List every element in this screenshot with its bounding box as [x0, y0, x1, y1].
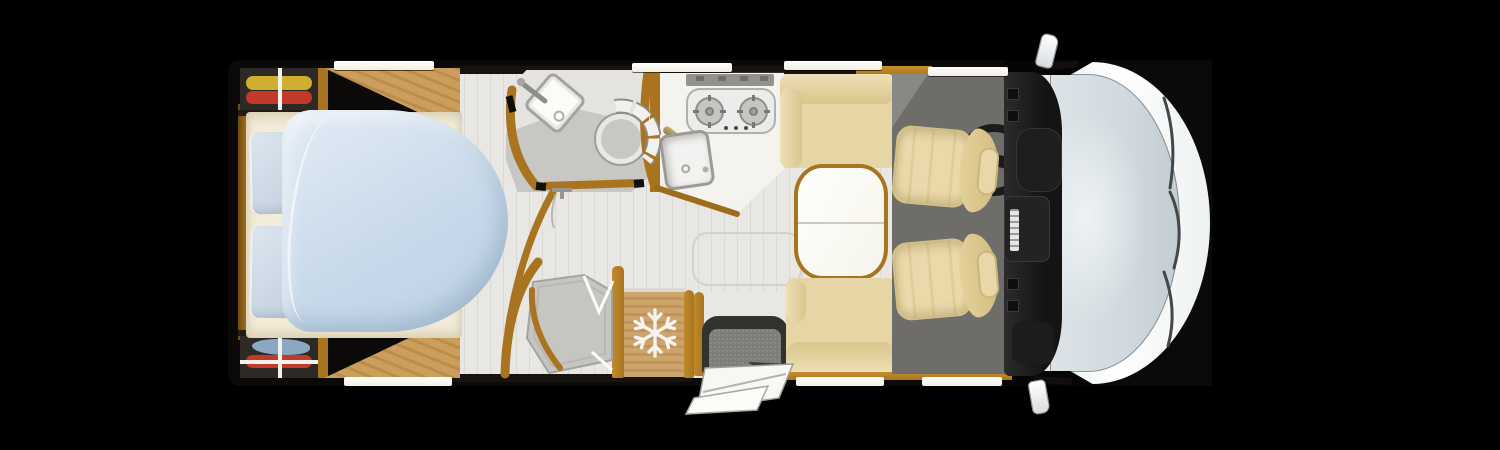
wall-shadow	[634, 183, 644, 184]
toilet-lid	[615, 106, 654, 160]
washroom-faucet	[523, 84, 545, 101]
counter-edge	[657, 188, 737, 214]
window-strip-bottom-bedroom	[344, 377, 452, 386]
wall-shadow	[509, 96, 513, 112]
window-strip-top-dinette	[784, 61, 882, 70]
wiper-blades	[1164, 98, 1179, 346]
window-strip-top-cab	[928, 67, 1008, 76]
faucet-knob	[517, 78, 525, 86]
wall-shadow	[536, 186, 546, 187]
snowflake-icon	[632, 310, 678, 356]
window-strip-top-bedroom	[334, 61, 434, 70]
washroom-wall-bottom	[544, 183, 642, 186]
detail-overlay	[0, 0, 1500, 450]
floorplan-canvas	[0, 0, 1500, 450]
window-strip-bottom-cab	[922, 377, 1002, 386]
window-strip-top-kitchen	[632, 63, 732, 72]
window-strip-bottom-dinette	[796, 377, 884, 386]
